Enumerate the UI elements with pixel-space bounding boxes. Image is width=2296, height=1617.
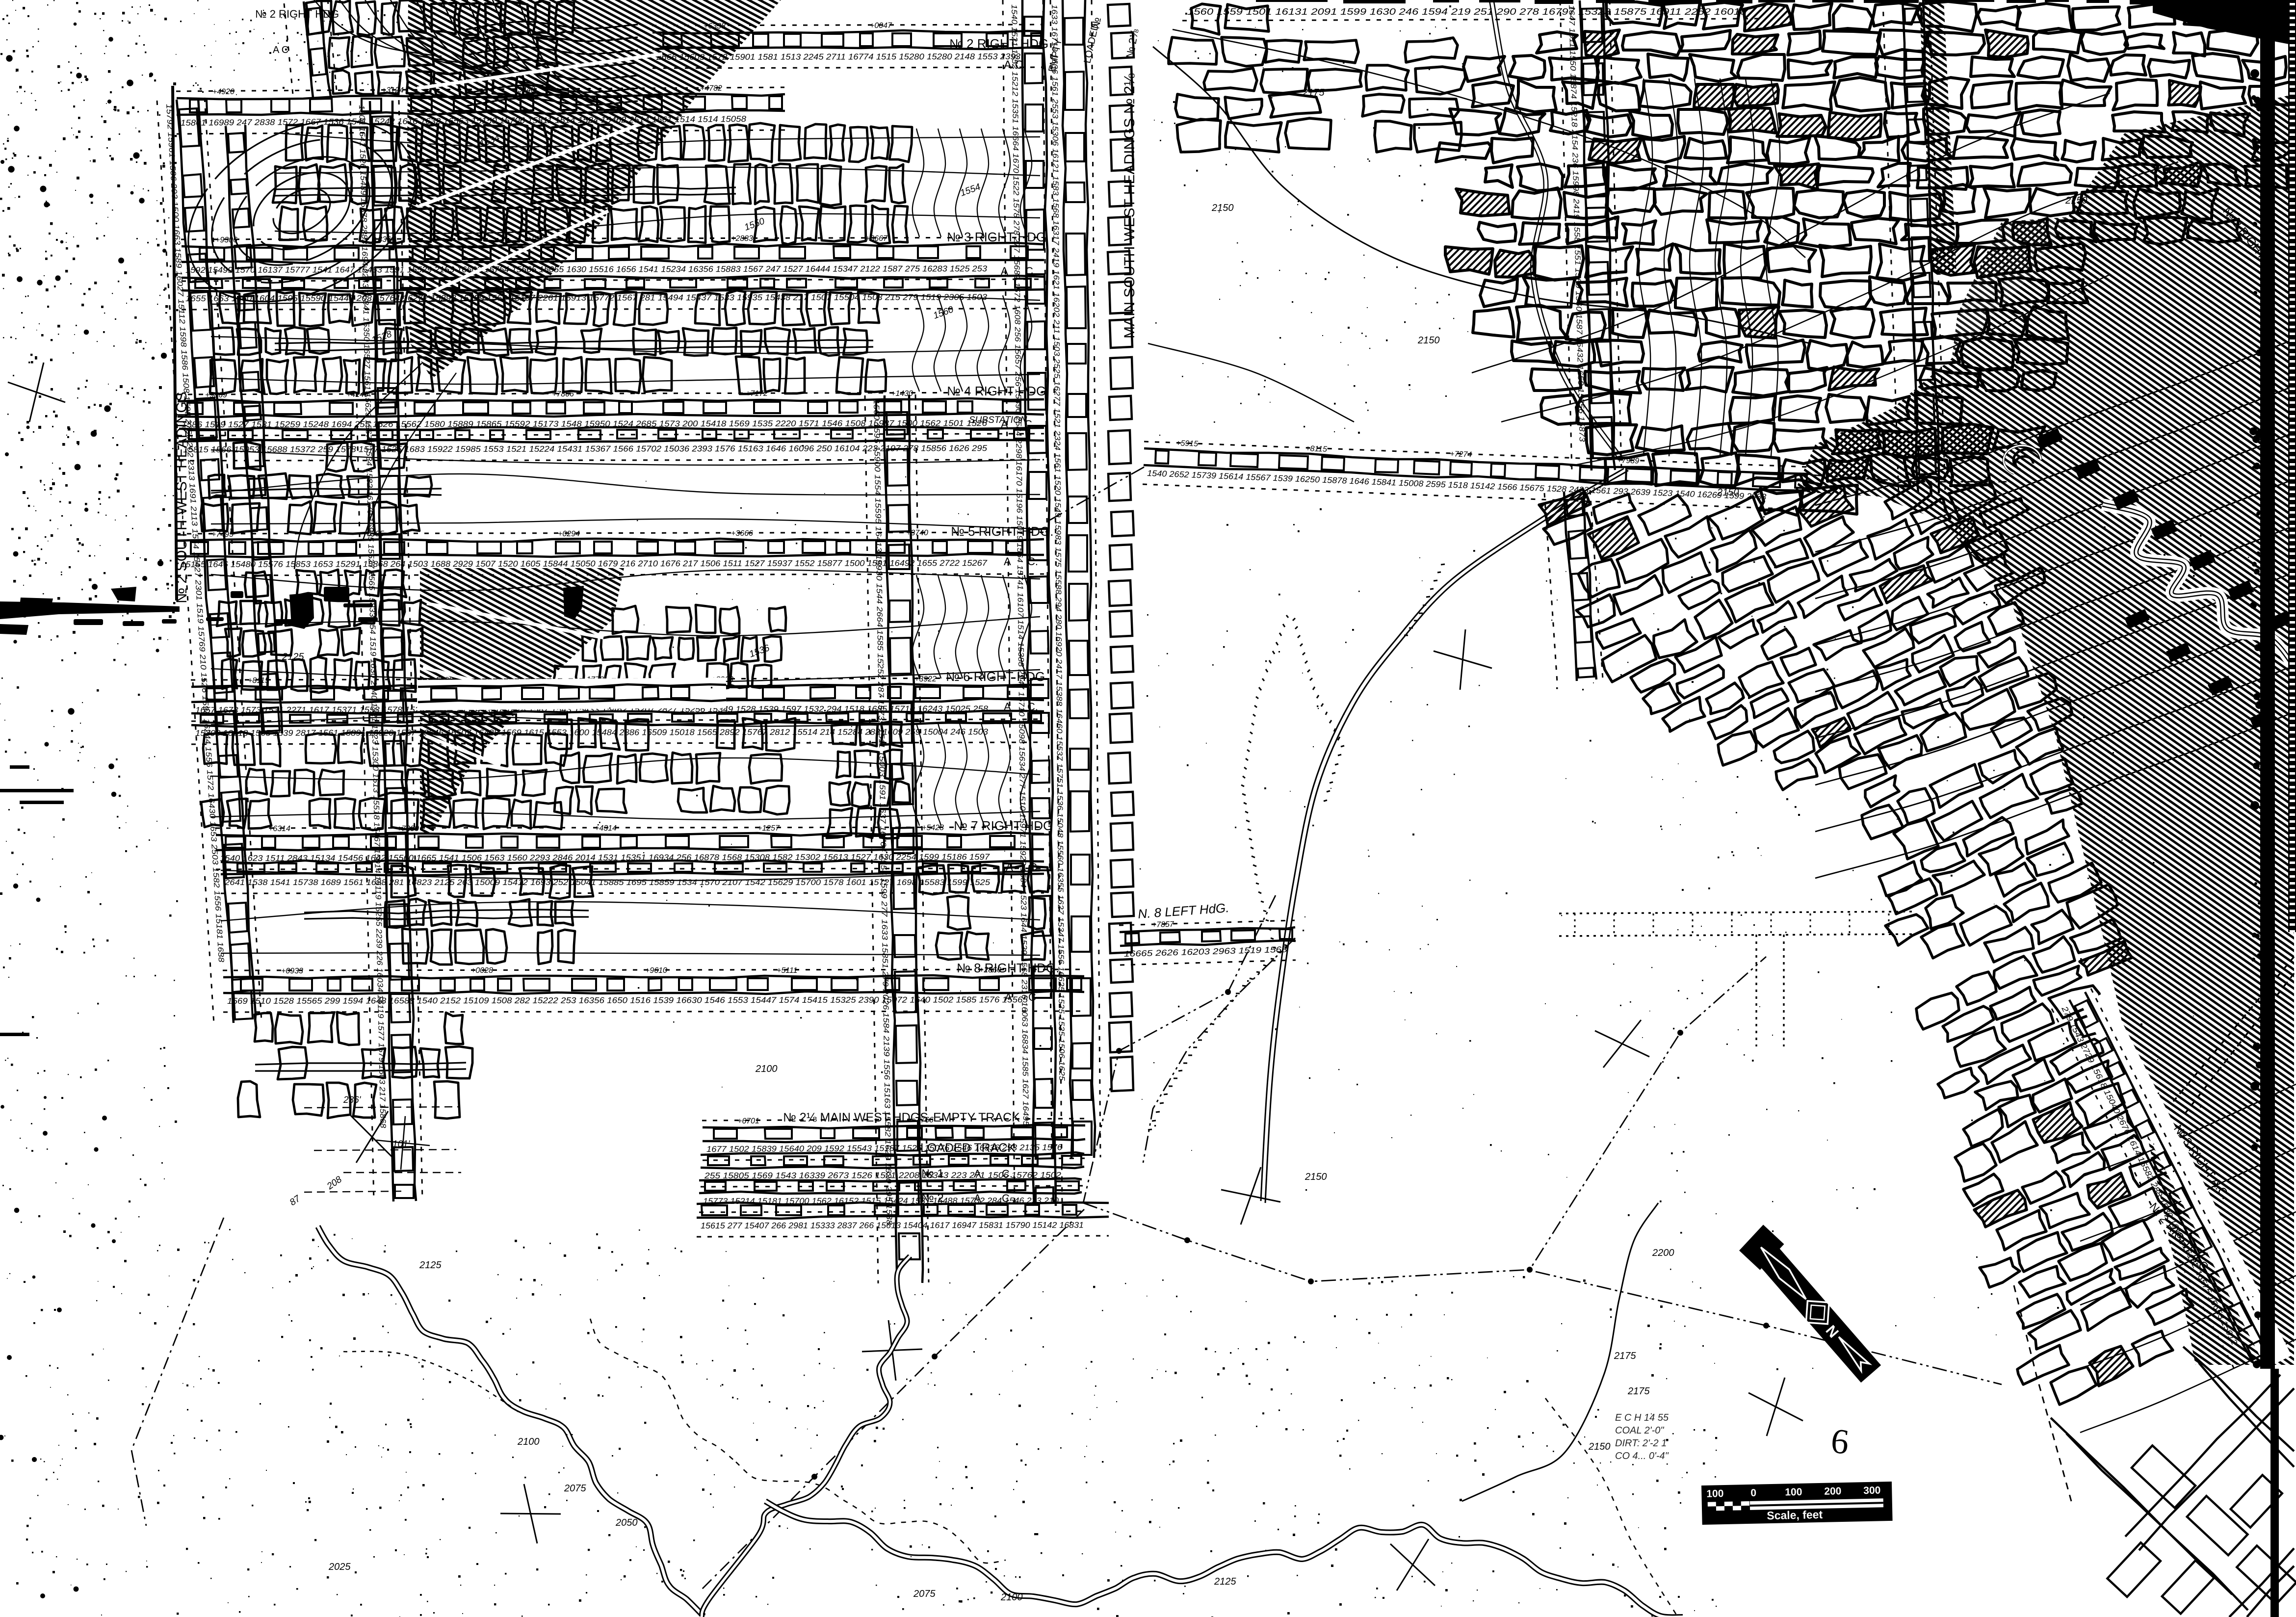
svg-text:C: C [1002, 1192, 1010, 1204]
svg-text:+6701: +6701 [737, 1117, 759, 1125]
svg-text:2075: 2075 [564, 1483, 586, 1494]
svg-text:COAL 2'-0": COAL 2'-0" [1615, 1425, 1664, 1436]
svg-text:2050: 2050 [615, 1517, 638, 1528]
svg-text:№ 2 RIGHT HDG: № 2 RIGHT HDG [255, 8, 339, 20]
svg-text:№ 8 RIGHT HDG.: № 8 RIGHT HDG. [957, 961, 1059, 975]
svg-text:+5915: +5915 [1176, 439, 1199, 448]
svg-text:SUBSTATION: SUBSTATION [969, 415, 1027, 425]
svg-text:+0933: +0933 [281, 967, 303, 975]
svg-text:+0047: +0047 [870, 22, 892, 30]
svg-text:EMPTY TRACK: EMPTY TRACK [933, 1111, 1020, 1124]
svg-text:+5111: +5111 [777, 966, 798, 975]
svg-text:2125: 2125 [1214, 1576, 1236, 1587]
svg-text:1592 15499 1570 16137 15777 15: 1592 15499 1570 16137 15777 1541 1647 15… [185, 264, 988, 275]
svg-text:№ 7 RIGHT HDG: № 7 RIGHT HDG [954, 818, 1053, 833]
svg-text:Scale, feet: Scale, feet [1767, 1508, 1823, 1522]
svg-text:101': 101' [392, 1139, 411, 1149]
svg-text:+8115: +8115 [1305, 444, 1327, 454]
svg-text:2125: 2125 [419, 1260, 442, 1271]
svg-text:2175: 2175 [1614, 1351, 1636, 1361]
svg-text:A: A [1004, 555, 1011, 568]
svg-text:2175: 2175 [1627, 1386, 1650, 1397]
svg-text:№ 6 RIGHT HDG: № 6 RIGHT HDG [946, 669, 1045, 684]
svg-text:C: C [1025, 265, 1033, 277]
svg-text:№ 3 RIGHT HDG: № 3 RIGHT HDG [947, 230, 1046, 244]
svg-text:C.: C. [1027, 701, 1038, 713]
svg-text:№ 4 RIGHT HDG: № 4 RIGHT HDG [947, 384, 1046, 398]
svg-text:A: A [974, 1168, 981, 1180]
svg-text:200: 200 [1824, 1486, 1842, 1497]
svg-text:15815 1566 15053 15688 15372 2: 15815 1566 15053 15688 15372 259 1578 15… [183, 443, 988, 454]
svg-text:A.C.: A.C. [1004, 58, 1027, 72]
svg-text:№ 2⅛ MAIN WEST HDGS.: № 2⅛ MAIN WEST HDGS. [783, 1111, 932, 1124]
svg-text:300: 300 [1863, 1485, 1881, 1496]
svg-text:2150: 2150 [1211, 203, 1234, 213]
svg-text:A: A [1001, 265, 1008, 277]
svg-text:2025: 2025 [328, 1562, 351, 1572]
svg-text:+1257: +1257 [757, 824, 780, 833]
svg-text:+9306: +9306 [215, 236, 237, 244]
svg-text:2125: 2125 [282, 652, 304, 662]
svg-text:C.: C. [1002, 1168, 1013, 1180]
svg-text:№ 1: № 1 [921, 1167, 944, 1180]
svg-text:+8115: +8115 [248, 677, 269, 685]
svg-text:2641 1538 1541 15738 1689 1561: 2641 1538 1541 15738 1689 1561 1688 281 … [224, 878, 991, 887]
svg-text:CO 4... 0'-4": CO 4... 0'-4" [1615, 1451, 1669, 1461]
svg-text:2100: 2100 [755, 1064, 778, 1074]
svg-text:236': 236' [343, 1095, 362, 1105]
svg-text:100: 100 [1706, 1488, 1724, 1500]
svg-text:A: A [1004, 701, 1011, 713]
svg-text:+0294: +0294 [558, 530, 580, 538]
svg-text:№ 2: № 2 [921, 1192, 944, 1205]
svg-text:№ 5 RIGHT HDG.: № 5 RIGHT HDG. [951, 524, 1053, 539]
svg-text:A: A [974, 1192, 981, 1204]
svg-text:2150: 2150 [1588, 1441, 1611, 1452]
svg-text:LOADED TRACK: LOADED TRACK [920, 1141, 1016, 1155]
svg-text:2150: 2150 [1417, 335, 1440, 346]
svg-text:+4920: +4920 [212, 88, 235, 96]
svg-text:C.: C. [1027, 555, 1038, 568]
svg-text:DIRT: 2'-2 1: DIRT: 2'-2 1 [1615, 1438, 1667, 1449]
svg-text:2100: 2100 [1000, 1592, 1023, 1603]
svg-text:C: C [1028, 991, 1036, 1003]
svg-text:2200: 2200 [1652, 1248, 1674, 1258]
svg-text:2075: 2075 [913, 1589, 936, 1599]
svg-text:0: 0 [1750, 1487, 1756, 1499]
svg-text:A: A [1006, 861, 1013, 873]
svg-text:1569 1510 1528 15565 299 1594: 1569 1510 1528 15565 299 1594 1648 16588… [227, 995, 1028, 1006]
svg-text:2100: 2100 [517, 1436, 540, 1447]
svg-text:E C H 14 55: E C H 14 55 [1615, 1412, 1669, 1423]
svg-text:15155 1646 15480 15576 15853 1: 15155 1646 15480 15576 15853 1653 15291 … [181, 558, 988, 569]
svg-text:MAIN SOUTH-WEST HEADINGS № 2⅛: MAIN SOUTH-WEST HEADINGS № 2⅛ [1122, 73, 1138, 339]
svg-text:№ 2 RIGHT HDG: № 2 RIGHT HDG [949, 36, 1048, 51]
svg-text:+3922: +3922 [914, 675, 937, 683]
svg-text:A: A [1005, 991, 1012, 1003]
svg-text:2150: 2150 [1305, 1172, 1327, 1182]
svg-text:100: 100 [1785, 1487, 1802, 1498]
svg-text:C: C [1029, 861, 1037, 873]
svg-text:№: № [1089, 16, 1103, 30]
